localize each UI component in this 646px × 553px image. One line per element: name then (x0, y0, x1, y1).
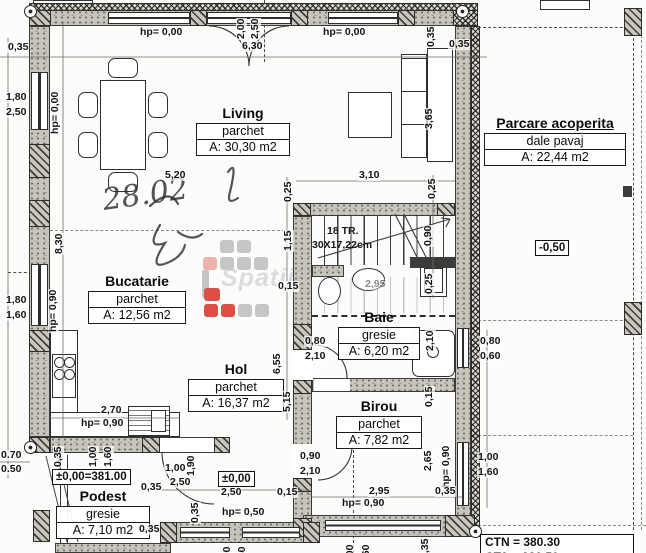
room-area: A: 30,30 m2 (197, 139, 289, 155)
dimension-label: hp= 0,00 (322, 27, 366, 38)
dimension-label: 6,55 (272, 353, 283, 375)
dimension-label: 5,20 (164, 170, 186, 181)
room-area: A: 7,10 m2 (57, 522, 149, 538)
dimension-label: 2,95 (364, 279, 386, 290)
dimension-label: 2,50 (169, 477, 191, 488)
dimension-label: hp= 0,90 (80, 418, 124, 429)
dimension-label: 0,35 (426, 26, 437, 48)
dimension-label: 0,60 (479, 351, 501, 362)
dimension-label: 0,35 (190, 502, 201, 524)
dimension-label: 0,90 (423, 225, 434, 247)
dimension-label: hp= 0,90 (48, 289, 59, 333)
dimension-label: 6,30 (241, 41, 263, 52)
dimension-label: hp= 0,00 (50, 91, 61, 135)
room-label-bucatarie: BucatarieparchetA: 12,56 m2 (88, 274, 186, 324)
dimension-label: 1,00 (164, 463, 186, 474)
stair-tread-size-label: 30X17,22cm (312, 239, 372, 251)
dimension-label: 0,15 (277, 281, 299, 292)
survey-levels-box: CTN = 380.30 CTA = 380,50 (480, 534, 634, 553)
axis-circle (24, 441, 37, 454)
dimension-label: 2,65 (423, 450, 434, 472)
dimension-label: 0.70 (0, 450, 22, 461)
dimension-label: 0,80 (304, 336, 326, 347)
room-finish: parchet (189, 380, 283, 395)
dimension-label: 1,15 (283, 230, 294, 252)
room-name: Living (196, 106, 290, 121)
dimension-label: 0,90 (299, 451, 321, 462)
room-name: Hol (188, 362, 284, 377)
door-swing-arcs (162, 26, 352, 504)
dimension-label: 1,80 (5, 92, 27, 103)
room-finish: gresie (339, 328, 419, 343)
dimension-label: 2,50 (237, 546, 248, 553)
dimension-label: 0,35 (420, 538, 431, 553)
dimension-label: 3,65 (424, 108, 435, 130)
dimension-label: 2,50 (5, 107, 27, 118)
dimension-label: 1,00 (345, 544, 356, 553)
dimension-label: 0,35 (434, 486, 456, 497)
room-finish: parchet (197, 124, 289, 139)
room-label-living: LivingparchetA: 30,30 m2 (196, 106, 290, 156)
dimension-label: 1,80 (5, 295, 27, 306)
dimension-label: 0,35 (448, 39, 470, 50)
room-name: Parcare acoperita (484, 116, 626, 131)
dimension-label: 1,00 (222, 546, 233, 553)
dimension-label: 0,25 (424, 273, 435, 295)
dimension-label: hp= 0,50 (221, 507, 265, 518)
dimension-label: 0,15 (424, 386, 435, 408)
axis-circle (24, 5, 37, 18)
dimension-label: 1,60 (477, 467, 499, 478)
dimension-label: 2,10 (425, 330, 436, 352)
room-label-hol: HolparchetA: 16,37 m2 (188, 362, 284, 412)
axis-circle (456, 5, 469, 18)
room-area: A: 16,37 m2 (189, 395, 283, 411)
room-finish: dale pavaj (485, 134, 625, 149)
dimension-label: 0,35 (7, 42, 29, 53)
dimension-label: 3,10 (358, 170, 380, 181)
dimension-label: 1,60 (103, 446, 114, 468)
room-info-box: dale pavajA: 22,44 m2 (484, 133, 626, 166)
room-area: A: 6,20 m2 (339, 343, 419, 359)
dimension-label: 0,35 (53, 446, 64, 468)
room-info-box: parchetA: 7,82 m2 (336, 416, 422, 449)
dimension-label: 0,80 (479, 336, 501, 347)
room-label-parcare-acoperita: Parcare acoperitadale pavajA: 22,44 m2 (484, 116, 626, 166)
room-name: Podest (56, 489, 150, 504)
room-label-podest: PodestgresieA: 7,10 m2 (56, 489, 150, 539)
dimension-label: 8,30 (54, 233, 65, 255)
dimension-label: 2,10 (299, 466, 321, 477)
level-mark-zero: ±0,00 (218, 471, 255, 487)
dimension-label: 0,25 (427, 178, 438, 200)
room-finish: parchet (337, 417, 421, 432)
room-label-baie: BaiegresieA: 6,20 m2 (338, 310, 420, 360)
level-mark-parcare: -0,50 (535, 240, 569, 256)
room-name: Birou (336, 399, 422, 414)
dimension-label: 0,35 (140, 482, 162, 493)
dimension-label: 1,90 (186, 455, 197, 477)
stair-count-label: 18 TR. (327, 225, 359, 237)
dimension-label: 2,70 (100, 405, 122, 416)
room-area: A: 7,82 m2 (337, 432, 421, 448)
dimension-label: 5,15 (282, 391, 293, 413)
dimension-label: 0.50 (0, 464, 22, 475)
dimension-label: 0,35 (138, 524, 160, 535)
dimension-label: hp= 0,90 (341, 498, 385, 509)
room-finish: parchet (89, 292, 185, 307)
room-info-box: parchetA: 30,30 m2 (196, 123, 290, 156)
room-area: A: 12,56 m2 (89, 307, 185, 323)
dimension-label: 2,50 (220, 487, 242, 498)
room-info-box: gresieA: 6,20 m2 (338, 327, 420, 360)
dimension-label: 0,25 (283, 181, 294, 203)
dimension-label: 2,50 (250, 18, 261, 40)
survey-ctn: CTN = 380.30 (481, 535, 633, 550)
dimension-label: hp= 0,00 (139, 27, 183, 38)
dimension-label: 2,00 (236, 18, 247, 40)
dimension-label: 0,15 (276, 487, 298, 498)
floor-plan-canvas: Spatii (0, 0, 646, 553)
room-info-box: parchetA: 16,37 m2 (188, 379, 284, 412)
room-name: Bucatarie (88, 274, 186, 289)
room-finish: gresie (57, 507, 149, 522)
room-area: A: 22,44 m2 (485, 149, 625, 165)
dimension-label: hp= 0,90 (441, 445, 452, 489)
dimension-label: 1,60 (5, 310, 27, 321)
dimension-label: 2,10 (304, 351, 326, 362)
room-name: Baie (338, 310, 420, 325)
dimension-label: 2,95 (368, 486, 390, 497)
level-mark-entry: ±0,00=381.00 (52, 469, 131, 485)
dimension-label: 1,00 (88, 446, 99, 468)
dimension-label: 1,00 (477, 452, 499, 463)
room-info-box: gresieA: 7,10 m2 (56, 506, 150, 539)
dimension-label: 1,60 (361, 544, 372, 553)
room-info-box: parchetA: 12,56 m2 (88, 291, 186, 324)
room-label-birou: BirouparchetA: 7,82 m2 (336, 399, 422, 449)
